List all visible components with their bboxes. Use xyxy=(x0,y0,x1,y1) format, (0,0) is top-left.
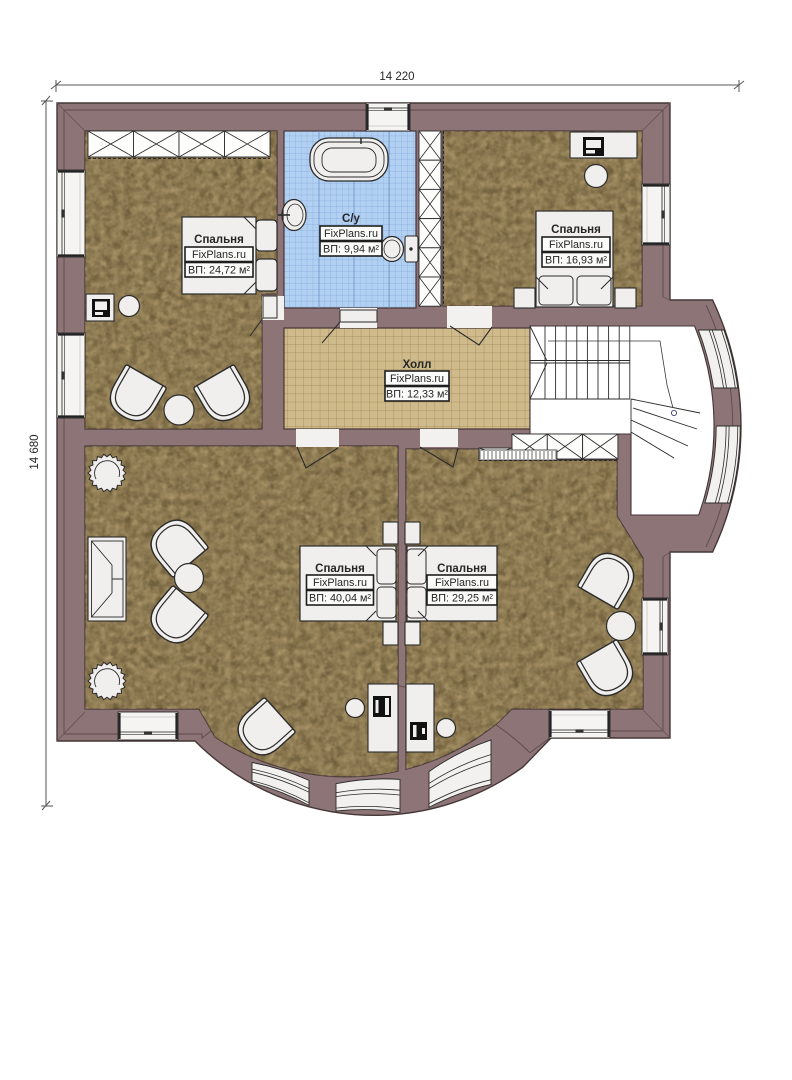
svg-text:Холл: Холл xyxy=(403,359,432,371)
svg-text:С/у: С/у xyxy=(342,213,361,225)
svg-text:FixPlans.ru: FixPlans.ru xyxy=(313,577,367,589)
svg-text:ВП: 24,72 м²: ВП: 24,72 м² xyxy=(188,265,250,277)
svg-text:ВП: 40,04 м²: ВП: 40,04 м² xyxy=(309,593,371,605)
svg-text:14 220: 14 220 xyxy=(379,71,414,83)
svg-text:Спальня: Спальня xyxy=(551,224,601,236)
svg-text:ВП: 9,94 м²: ВП: 9,94 м² xyxy=(323,244,379,256)
svg-text:ВП: 29,25 м²: ВП: 29,25 м² xyxy=(431,593,493,605)
svg-text:ВП: 12,33 м²: ВП: 12,33 м² xyxy=(386,389,448,401)
svg-text:FixPlans.ru: FixPlans.ru xyxy=(324,228,378,240)
svg-text:FixPlans.ru: FixPlans.ru xyxy=(435,577,489,589)
svg-text:FixPlans.ru: FixPlans.ru xyxy=(192,249,246,261)
svg-text:14 680: 14 680 xyxy=(29,434,41,469)
svg-text:FixPlans.ru: FixPlans.ru xyxy=(549,239,603,251)
svg-text:Спальня: Спальня xyxy=(437,563,487,575)
svg-text:Спальня: Спальня xyxy=(315,563,365,575)
svg-text:ВП: 16,93 м²: ВП: 16,93 м² xyxy=(545,255,607,267)
svg-text:FixPlans.ru: FixPlans.ru xyxy=(390,373,444,385)
svg-text:Спальня: Спальня xyxy=(194,234,244,246)
